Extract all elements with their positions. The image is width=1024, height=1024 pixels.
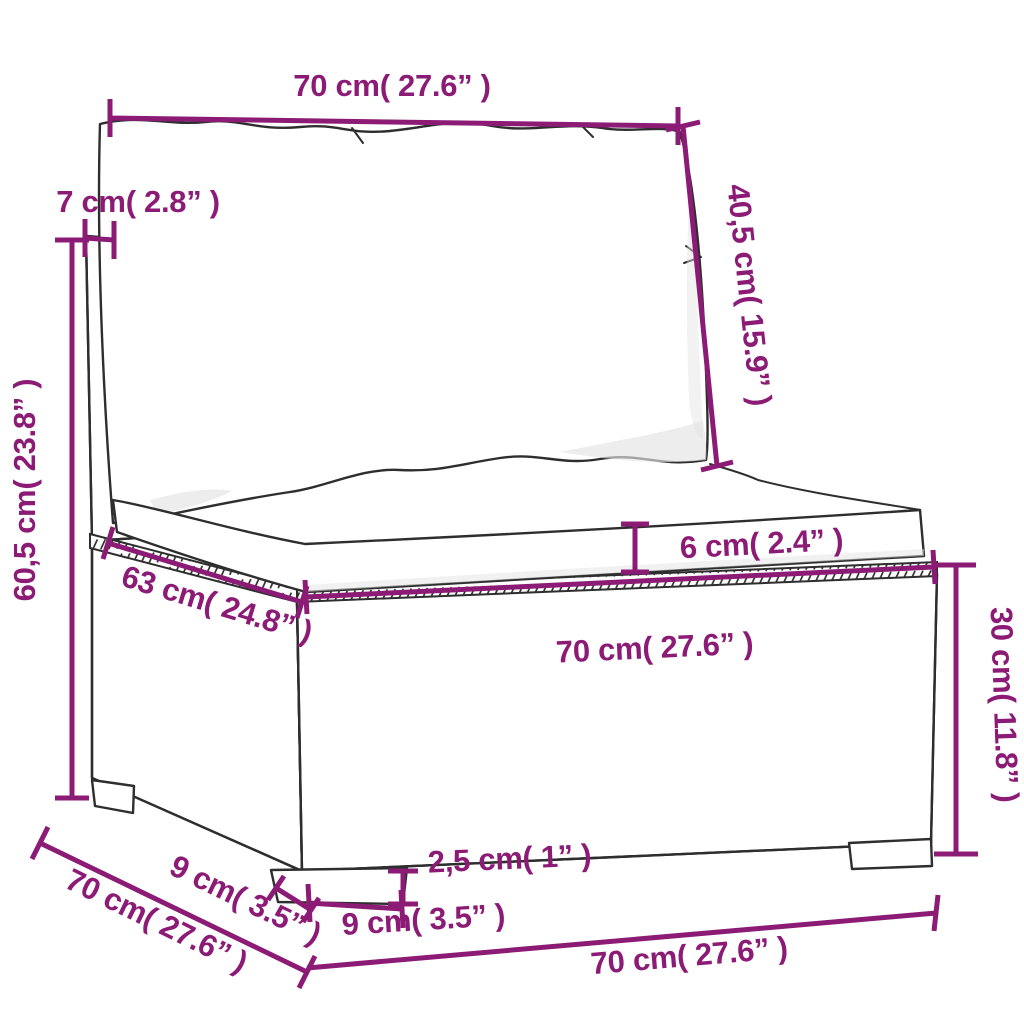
dim-label-base-height: 30 cm( 11.8” ) — [984, 606, 1024, 803]
dim-label-leg-height: 2,5 cm( 1” ) — [427, 837, 592, 879]
dimension-diagram: 70 cm( 27.6” ) 40,5 cm( 15.9” ) 7 cm( 2.… — [0, 0, 1024, 1024]
base-front-face — [297, 574, 937, 871]
front-right-leg — [849, 839, 932, 869]
dim-total-height: 60,5 cm( 23.8” ) — [7, 240, 89, 798]
sofa-dimension-drawing: 70 cm( 27.6” ) 40,5 cm( 15.9” ) 7 cm( 2.… — [0, 0, 1024, 1024]
dim-label-back-thickness: 7 cm( 2.8” ) — [56, 184, 220, 219]
dim-label-total-height: 60,5 cm( 23.8” ) — [7, 379, 42, 602]
dim-label-bottom-width: 70 cm( 27.6” ) — [589, 930, 789, 981]
back-cushion — [99, 120, 708, 523]
dim-label-back-cushion-height: 40,5 cm( 15.9” ) — [720, 182, 778, 407]
dim-base-height: 30 cm( 11.8” ) — [932, 565, 1024, 854]
side-leg — [92, 780, 134, 813]
dim-label-top-width: 70 cm( 27.6” ) — [293, 68, 490, 103]
